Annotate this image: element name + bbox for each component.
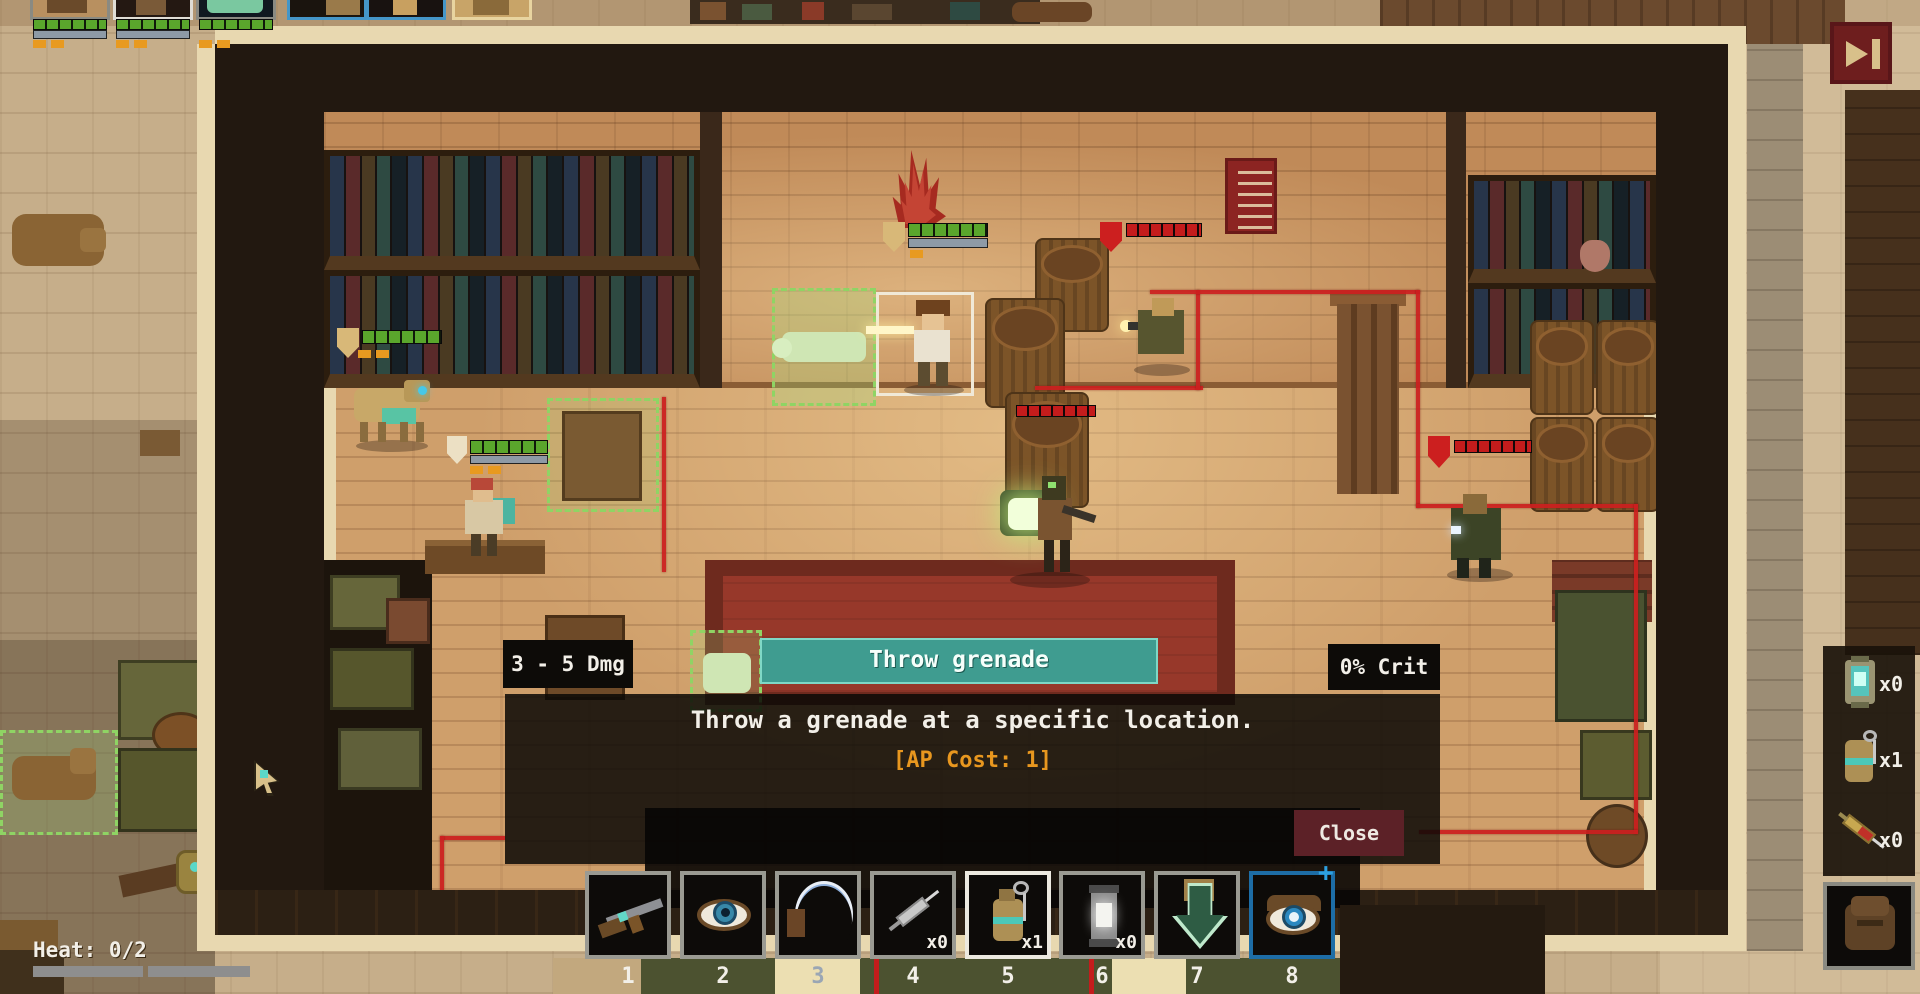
ap-pip: [910, 250, 923, 258]
shelf-item: [852, 4, 892, 20]
hp-bar: [470, 440, 548, 454]
slot-number-8: 8: [1249, 960, 1335, 994]
frag-grenade-icon[interactable]: [1843, 730, 1879, 786]
enemy-hp-bar: [1454, 440, 1532, 453]
slot-count: x1: [1021, 932, 1043, 953]
plus-badge: +: [1318, 858, 1334, 888]
ap-pip: [134, 40, 147, 48]
damage-text: 3 - 5 Dmg: [511, 652, 625, 676]
bookshelf-right-top: [1468, 175, 1656, 283]
sidewalk-strip: [1747, 44, 1803, 951]
building-wall-left: [215, 44, 324, 935]
ability-title-bar: Throw grenade: [760, 638, 1158, 684]
slot-number-2: 2: [680, 960, 766, 994]
slot-number-5: 5: [965, 960, 1051, 994]
building-edge-left: [197, 44, 215, 951]
slot-number-1: 1: [585, 960, 671, 994]
heat-label: Heat: 0/2: [33, 938, 147, 962]
ap-pip: [358, 350, 371, 358]
slot-count: x0: [1115, 932, 1137, 953]
quick-item-panel: x0 x1 x0: [1823, 646, 1915, 876]
hotbar-slot-3[interactable]: [775, 871, 861, 959]
game-screen: 3 - 5 Dmg 0% Crit Throw grenade Throw a …: [0, 0, 1920, 994]
crit-text: 0% Crit: [1340, 655, 1429, 679]
barrel-top: [1586, 804, 1648, 868]
ap-pip: [51, 40, 64, 48]
downed-character: [782, 332, 866, 362]
ap-pip: [116, 40, 129, 48]
crate: [386, 598, 430, 644]
heat-segment-1: [33, 966, 143, 977]
ap-pip: [217, 40, 230, 48]
party-hp-bar: [199, 19, 273, 30]
crate-in-tile: [562, 411, 642, 501]
barrel: [1530, 417, 1594, 512]
shelf-item: [742, 4, 772, 20]
bookshelf-left-bottom: [324, 270, 700, 388]
enemy-hp-bar: [1126, 223, 1202, 237]
shelf-item: [950, 2, 980, 20]
pillar: [1337, 304, 1399, 494]
move-boundary: [440, 836, 444, 890]
barrel: [1596, 417, 1656, 512]
shelf-item: [700, 2, 726, 20]
building-edge-top: [215, 26, 1746, 44]
downed-character-head: [772, 338, 792, 358]
hotbar-slot-6[interactable]: x0: [1059, 871, 1145, 959]
armor-bar: [470, 455, 548, 464]
item-count: x1: [1879, 748, 1903, 772]
lantern-character[interactable]: [1000, 468, 1100, 598]
move-boundary: [662, 397, 666, 572]
ability-title: Throw grenade: [869, 647, 1049, 673]
crate: [330, 648, 414, 710]
wall-post: [700, 112, 722, 388]
party-hp-bar: [33, 19, 107, 30]
enemy-stalker[interactable]: [1443, 492, 1519, 588]
damage-label: 3 - 5 Dmg: [503, 640, 633, 688]
hotbar-slot-2[interactable]: [680, 871, 766, 959]
heat-segment-2: [148, 966, 250, 977]
shelf-item: [802, 2, 824, 20]
ap-pip: [199, 40, 212, 48]
crit-label: 0% Crit: [1328, 644, 1440, 690]
move-boundary: [440, 836, 505, 840]
party-armor-bar: [33, 30, 107, 39]
portrait-2[interactable]: [113, 0, 193, 20]
wanted-poster: [1225, 158, 1277, 234]
downed-figure: [703, 653, 751, 693]
ability-description: Throw a grenade at a specific location.: [505, 706, 1440, 734]
move-boundary: [1035, 386, 1203, 390]
portrait-1[interactable]: [30, 0, 110, 20]
item-count: x0: [1879, 672, 1903, 696]
crate: [1580, 730, 1652, 800]
sword-glow: [866, 326, 914, 334]
slot-number-4: 4: [870, 960, 956, 994]
enemy-gunner[interactable]: [1128, 292, 1198, 382]
hotbar-slot-5-selected[interactable]: x1: [965, 871, 1051, 959]
ap-cost-text: [AP Cost: 1]: [505, 748, 1440, 773]
portrait-4[interactable]: [287, 0, 367, 20]
building-wall-right: [1656, 44, 1728, 935]
hotbar-slot-7[interactable]: [1154, 871, 1240, 959]
medic-character[interactable]: [455, 478, 525, 568]
skip-turn-button[interactable]: [1830, 22, 1892, 84]
wall-post: [1446, 112, 1466, 388]
barrel: [1596, 320, 1656, 415]
hp-bar: [362, 330, 442, 344]
ap-pip: [33, 40, 46, 48]
right-building: [1845, 90, 1920, 655]
slot-number-6: 6: [1059, 960, 1145, 994]
bookshelf-left-top: [324, 150, 700, 270]
move-boundary: [1419, 830, 1638, 834]
armor-bar: [908, 238, 988, 248]
slot-count: x0: [926, 932, 948, 953]
street-dog-target-head: [70, 748, 96, 774]
target-tile[interactable]: [547, 398, 659, 512]
glow-eye: [1451, 526, 1461, 534]
dash-figure: [787, 909, 805, 937]
ap-pip: [470, 466, 483, 474]
hotbar-slot-4[interactable]: x0: [870, 871, 956, 959]
portrait-5[interactable]: [366, 0, 446, 20]
skip-turn-icon: [1846, 41, 1868, 67]
move-boundary: [1634, 504, 1638, 834]
street-dog-head: [80, 228, 106, 252]
street-debris: [140, 430, 180, 456]
ap-pip: [376, 350, 389, 358]
item-count: x0: [1879, 828, 1903, 852]
slot-number-3: 3: [775, 960, 861, 994]
building-wall-top: [215, 44, 1728, 112]
center-hp-bar: [1016, 405, 1096, 417]
close-button[interactable]: Close: [1294, 810, 1404, 856]
ap-pip: [488, 466, 501, 474]
hotbar-right-shadow: [1340, 905, 1545, 994]
inventory-bag-slot[interactable]: [1823, 882, 1915, 970]
hotbar-slot-1[interactable]: [585, 871, 671, 959]
stun-lantern-icon[interactable]: [1845, 656, 1875, 708]
crate: [338, 728, 422, 790]
pot-on-shelf: [1580, 240, 1610, 272]
portrait-6[interactable]: [452, 0, 532, 20]
mech-hound[interactable]: [348, 378, 444, 458]
selected-character[interactable]: [896, 300, 972, 400]
mech-eye: [418, 386, 427, 395]
portrait-3[interactable]: [196, 0, 276, 20]
party-hp-bar: [116, 19, 190, 30]
rifle-icon: [592, 884, 673, 949]
street-dog-top-edge: [1012, 2, 1092, 22]
party-armor-bar: [116, 30, 190, 39]
barrel: [1530, 320, 1594, 415]
mouse-cursor: [254, 760, 282, 798]
slot-number-7: 7: [1154, 960, 1240, 994]
move-boundary: [1416, 290, 1420, 508]
hp-bar: [908, 223, 988, 237]
building-edge-right: [1728, 44, 1746, 951]
